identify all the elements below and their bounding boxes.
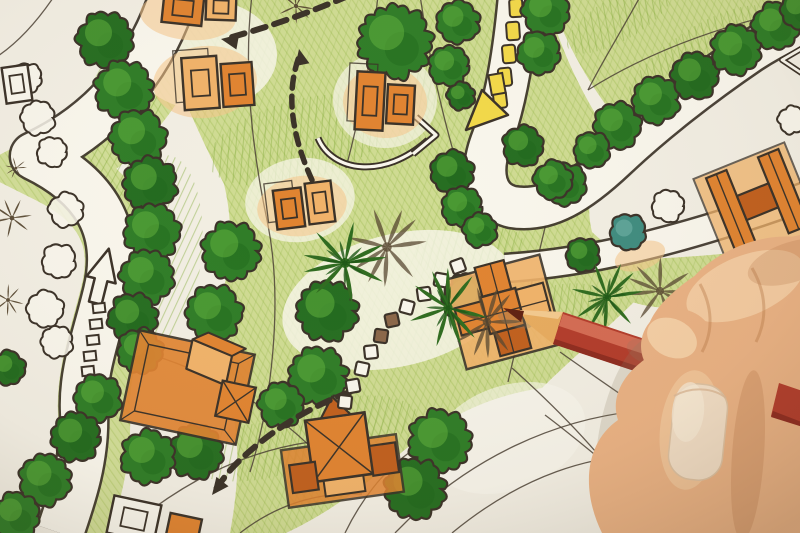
photo-of-landscape-site-plan <box>0 0 800 533</box>
photo-vignette <box>0 0 800 533</box>
site-plan-drawing <box>0 0 800 533</box>
